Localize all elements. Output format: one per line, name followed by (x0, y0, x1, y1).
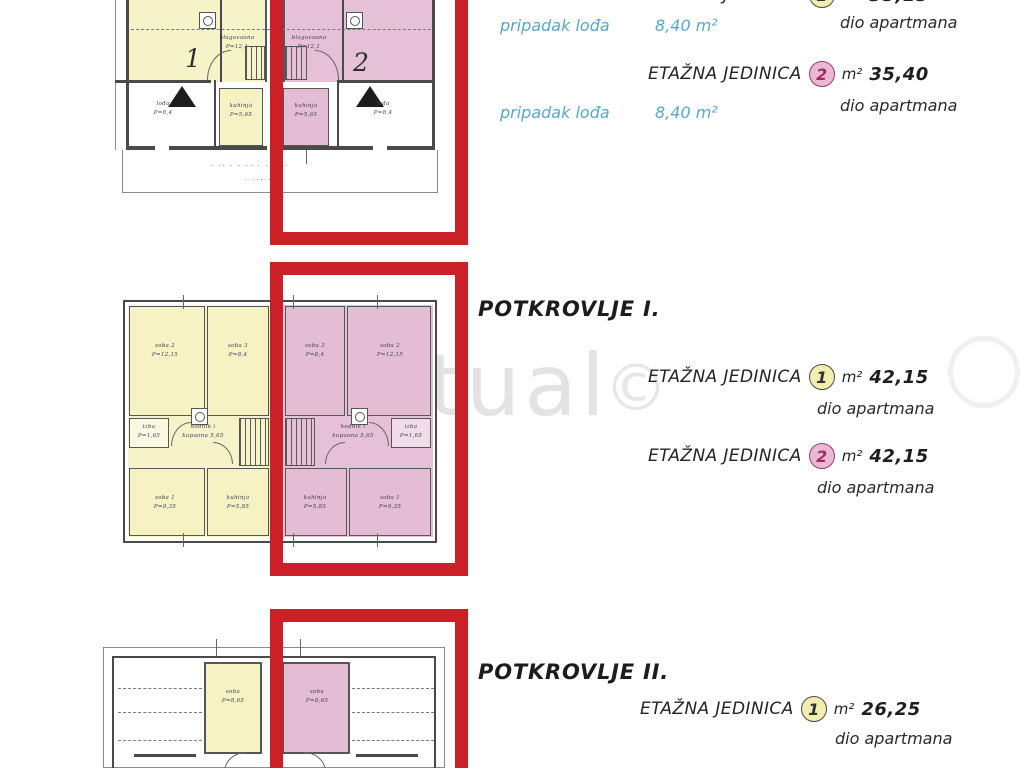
square-meter-label: m² (834, 700, 855, 718)
room-label: hodnik i kupaona 5,65 (171, 423, 235, 441)
vent-icon (199, 12, 216, 29)
wall (115, 0, 116, 150)
scanned-floorplan-page: tual © 1 2 blagovaona P=12,1 (0, 0, 1024, 768)
unit-badge: 2 (809, 61, 835, 87)
room-label: soba 1 P=9,35 (140, 494, 190, 512)
loggia-label: pripadak lođa (500, 103, 610, 122)
square-meter-label: m² (842, 447, 863, 465)
unit-badge: 2 (809, 443, 835, 469)
room-area: P=12,15 (140, 351, 190, 360)
roof-dashline (118, 688, 202, 689)
room-name: blagovaona (215, 34, 259, 43)
loggia-value: 8,40 m² (655, 103, 718, 122)
section-heading: POTKROVLJE I. (478, 297, 660, 321)
dimension-tick (216, 639, 217, 657)
room-name: soba 2 (140, 342, 190, 351)
room-name: soba 3 (213, 342, 263, 351)
room-area: P=9,35 (140, 503, 190, 512)
room-name: lođa (133, 100, 193, 109)
square-meter-label: m² (842, 65, 863, 83)
room-label: kuhinja P=5,85 (213, 494, 263, 512)
loggia-label: pripadak lođa (500, 16, 610, 35)
room-area: P=5,65 (221, 111, 261, 120)
unit-area-value: 42,15 (869, 367, 928, 388)
unit-label: ETAŽNA JEDINICA (640, 699, 794, 719)
room-label: izba P=1,65 (131, 423, 167, 441)
unit-area-value: 35,40 (869, 64, 928, 85)
room-area: kupaona 5,65 (171, 432, 235, 441)
room (207, 306, 269, 416)
dimension-tick (183, 295, 184, 309)
highlight-frame-potkrovlje-1 (270, 262, 468, 576)
roof-dashline (118, 712, 202, 713)
unit-label: ETAŽNA JEDINICA (648, 0, 802, 5)
wall (115, 80, 211, 83)
unit1-marker: 1 (185, 44, 201, 73)
unit-subtitle: dio apartmana (840, 96, 957, 115)
room-name: hodnik i (171, 423, 235, 432)
unit-badge: 1 (801, 696, 827, 722)
room-area: P=12,1 (215, 43, 259, 52)
room-area: P=8,4 (133, 109, 193, 118)
square-meter-label: m² (842, 0, 863, 4)
unit-line: ETAŽNA JEDINICA 1 m² 42,15 (648, 363, 929, 391)
unit-badge: 1 (809, 364, 835, 390)
room-label: soba P=8,65 (206, 688, 260, 706)
wall (126, 0, 129, 150)
wall (214, 80, 216, 146)
room-label: kuhinja P=5,65 (221, 102, 261, 120)
unit-area-value: 35,15 (869, 0, 928, 6)
wall (134, 754, 196, 757)
room (204, 662, 262, 754)
unit-line: ETAŽNA JEDINICA 1 m² 26,25 (640, 695, 921, 723)
room-label: soba 2 P=12,15 (140, 342, 190, 360)
unit-label: ETAŽNA JEDINICA (648, 367, 802, 387)
unit-label: ETAŽNA JEDINICA (648, 446, 802, 466)
room-name: kuhinja (213, 494, 263, 503)
room-label: blagovaona P=12,1 (215, 34, 259, 52)
unit-area-value: 26,25 (861, 699, 920, 720)
room-name: izba (131, 423, 167, 432)
room-label: soba 3 P=8,4 (213, 342, 263, 360)
room-label: lođa P=8,4 (133, 100, 193, 118)
unit-subtitle: dio apartmana (817, 399, 934, 418)
room-area: P=5,85 (213, 503, 263, 512)
loggia-value: 8,40 m² (655, 16, 718, 35)
section-heading: POTKROVLJE II. (478, 660, 669, 684)
room (129, 306, 205, 416)
highlight-frame-potkrovlje-2 (270, 609, 468, 768)
unit-subtitle: dio apartmana (835, 729, 952, 748)
watermark-ring-icon (948, 336, 1020, 408)
highlight-frame-ground (270, 0, 468, 245)
stairs (239, 418, 269, 466)
unit-subtitle: dio apartmana (840, 13, 957, 32)
dimension-tick (183, 533, 184, 547)
square-meter-label: m² (842, 368, 863, 386)
unit-line: ETAŽNA JEDINICA 2 m² 35,40 (648, 60, 929, 88)
room-area: P=8,65 (206, 697, 260, 706)
unit-label: ETAŽNA JEDINICA (648, 64, 802, 84)
roof-dashline (118, 740, 202, 741)
unit-line: ETAŽNA JEDINICA 1 m² 35,15 (648, 0, 929, 9)
unit-subtitle: dio apartmana (817, 478, 934, 497)
room-area: P=8,4 (213, 351, 263, 360)
unit-area-value: 42,15 (869, 446, 928, 467)
unit-line: ETAŽNA JEDINICA 2 m² 42,15 (648, 442, 929, 470)
room-name: soba 1 (140, 494, 190, 503)
dimension-text: · ··· · (245, 177, 272, 184)
room-area: P=1,65 (131, 432, 167, 441)
room-name: kuhinja (221, 102, 261, 111)
unit-badge: 1 (809, 0, 835, 8)
room-name: soba (206, 688, 260, 697)
